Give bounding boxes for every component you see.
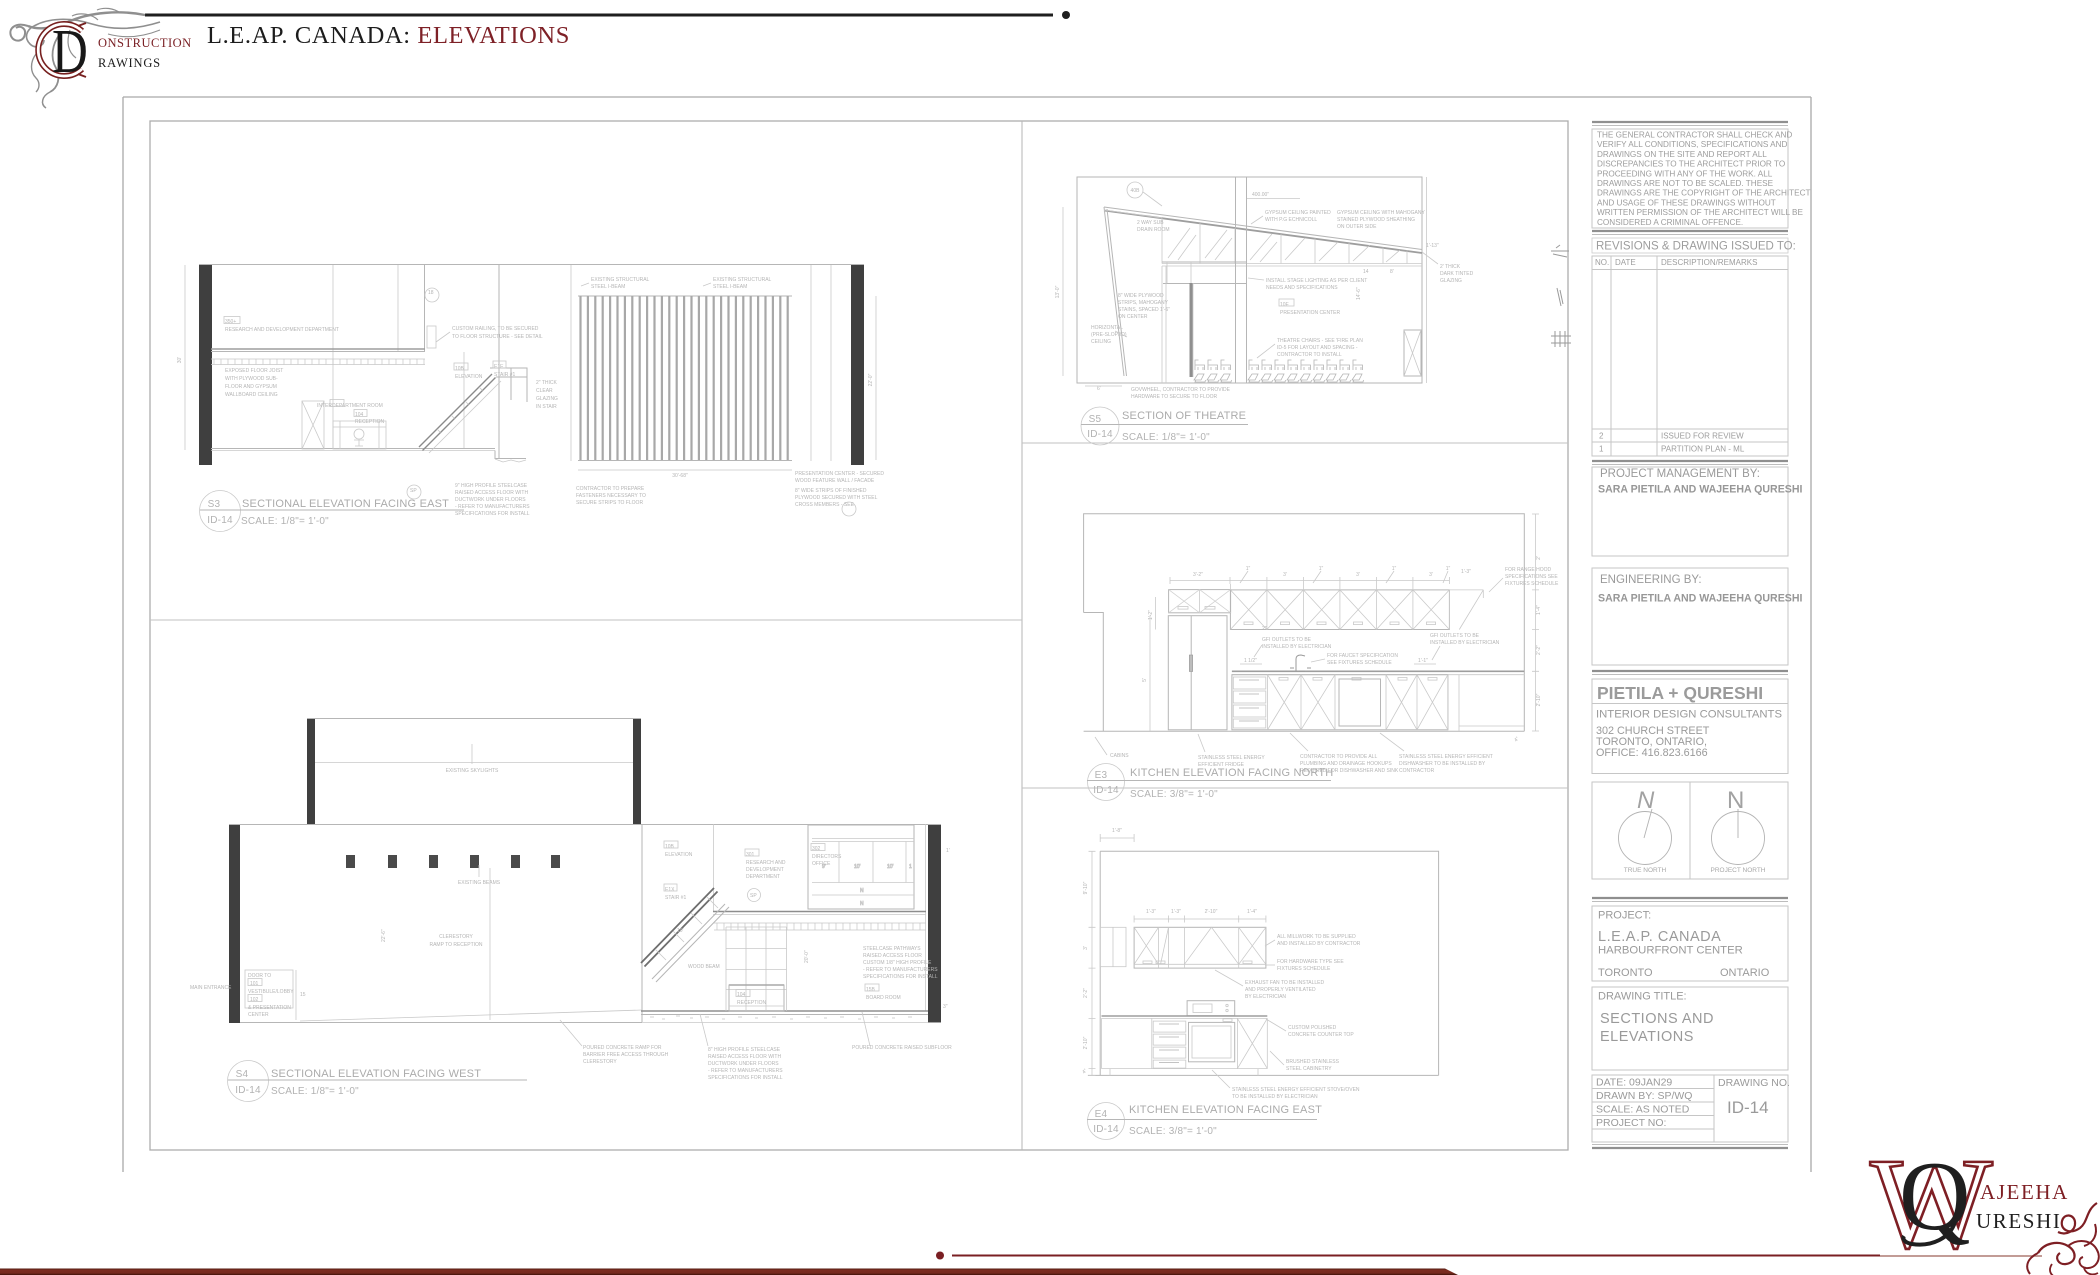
svg-text:E1E: E1E: [494, 364, 504, 370]
svg-text:DRAIN ROOM: DRAIN ROOM: [1137, 227, 1170, 233]
svg-text:SCALE: 1/8"= 1'-0": SCALE: 1/8"= 1'-0": [1122, 432, 1210, 443]
svg-text:2': 2': [1536, 556, 1542, 560]
svg-text:FLOOR AND GYPSUM: FLOOR AND GYPSUM: [225, 384, 277, 390]
svg-text:10': 10': [854, 864, 861, 870]
svg-text:2 WAY SUB: 2 WAY SUB: [1137, 220, 1164, 226]
svg-text:104: 104: [737, 992, 746, 998]
svg-text:5': 5': [1142, 678, 1148, 682]
svg-text:DUCTWORK UNDER FLOORS: DUCTWORK UNDER FLOORS: [455, 497, 526, 503]
svg-text:3': 3': [1429, 572, 1433, 578]
svg-text:DRAWING TITLE:: DRAWING TITLE:: [1598, 991, 1687, 1003]
svg-text:1'-2": 1'-2": [1148, 610, 1154, 620]
svg-text:- REFER TO MANUFACTURERS: - REFER TO MANUFACTURERS: [708, 1068, 783, 1074]
svg-text:30'-68": 30'-68": [672, 473, 688, 479]
svg-text:POURED CONCRETE RAISED SUBFLOO: POURED CONCRETE RAISED SUBFLOOR: [852, 1045, 952, 1051]
svg-text:CUSTOM POLISHED: CUSTOM POLISHED: [1288, 1025, 1337, 1031]
svg-text:L.E.AP. CANADA: ELEVATIONS: L.E.AP. CANADA: ELEVATIONS: [207, 22, 570, 49]
svg-text:E3: E3: [1095, 770, 1108, 781]
svg-text:GOVWHEEL, CONTRACTOR TO PROVID: GOVWHEEL, CONTRACTOR TO PROVIDE: [1131, 387, 1231, 393]
svg-text:SCALE: 3/8"= 1'-0": SCALE: 3/8"= 1'-0": [1130, 789, 1218, 800]
svg-text:RESEARCH AND: RESEARCH AND: [746, 860, 786, 866]
svg-text:DATE: 09JAN29: DATE: 09JAN29: [1596, 1077, 1672, 1089]
svg-text:RECEPTION: RECEPTION: [737, 1000, 767, 1006]
svg-text:RAISED ACCESS FLOOR WITH: RAISED ACCESS FLOOR WITH: [455, 490, 528, 496]
svg-text:SP: SP: [410, 488, 417, 494]
svg-text:FIXTURES SCHEDULE: FIXTURES SCHEDULE: [1277, 966, 1331, 972]
svg-text:SCALE: 1/8"= 1'-0": SCALE: 1/8"= 1'-0": [271, 1086, 359, 1097]
svg-text:- REFER TO MANUFACTURERS: - REFER TO MANUFACTURERS: [863, 967, 938, 973]
svg-text:CLERESTORY: CLERESTORY: [583, 1059, 617, 1065]
svg-text:DIRECTORS: DIRECTORS: [812, 854, 842, 860]
svg-text:THE GENERAL CONTRACTOR SHALL C: THE GENERAL CONTRACTOR SHALL CHECK AND: [1597, 131, 1792, 140]
svg-text:PARTITION PLAN - ML: PARTITION PLAN - ML: [1661, 445, 1745, 454]
svg-text:STAIR #1: STAIR #1: [494, 372, 516, 378]
svg-text:PROCEEDING WITH ANY OF THE WOR: PROCEEDING WITH ANY OF THE WORK. ALL: [1597, 169, 1773, 178]
svg-text:ALL MILLWORK TO BE SUPPLIED: ALL MILLWORK TO BE SUPPLIED: [1277, 934, 1356, 940]
svg-text:DATE: DATE: [1615, 258, 1636, 267]
svg-text:15B: 15B: [866, 987, 876, 993]
svg-text:- REFER TO MANUFACTURERS: - REFER TO MANUFACTURERS: [455, 504, 530, 510]
svg-text:TRUE NORTH: TRUE NORTH: [1624, 867, 1667, 874]
svg-text:14'-6": 14'-6": [1356, 287, 1362, 300]
svg-text:KITCHEN ELEVATION FACING NORTH: KITCHEN ELEVATION FACING NORTH: [1130, 767, 1333, 779]
svg-text:CLEAR: CLEAR: [536, 388, 553, 394]
svg-text:3": 3": [943, 1004, 948, 1010]
svg-text:STAINLESS STEEL ENERGY: STAINLESS STEEL ENERGY: [1198, 755, 1265, 761]
svg-text:8" WIDE STRIPS OF FINISHED: 8" WIDE STRIPS OF FINISHED: [795, 488, 867, 494]
svg-text:8" HIGH PROFILE STEELCASE: 8" HIGH PROFILE STEELCASE: [708, 1047, 781, 1053]
svg-text:3': 3': [1283, 572, 1287, 578]
svg-text:PRESENTATION CENTER: PRESENTATION CENTER: [1280, 310, 1340, 316]
svg-text:SCALE: 3/8"= 1'-0": SCALE: 3/8"= 1'-0": [1129, 1126, 1217, 1137]
svg-text:13'-0": 13'-0": [1055, 285, 1061, 298]
svg-text:DRAWINGS ARE NOT TO BE SCALED.: DRAWINGS ARE NOT TO BE SCALED. THESE: [1597, 179, 1774, 188]
svg-text:DRAWING NO.: DRAWING NO.: [1718, 1077, 1790, 1089]
svg-text:1'-8": 1'-8": [1112, 828, 1122, 834]
svg-text:GFI OUTLETS TO BE: GFI OUTLETS TO BE: [1430, 633, 1480, 639]
svg-text:101: 101: [250, 981, 259, 987]
svg-text:EXPOSED FLOOR JOIST: EXPOSED FLOOR JOIST: [225, 368, 283, 374]
svg-text:RAMP TO RECEPTION: RAMP TO RECEPTION: [429, 942, 482, 948]
svg-text:DRAWN BY: SP/WQ: DRAWN BY: SP/WQ: [1596, 1090, 1692, 1102]
svg-text:WITH PLYWOOD SUB-: WITH PLYWOOD SUB-: [225, 376, 278, 382]
svg-text:EXISTING STRUCTURAL: EXISTING STRUCTURAL: [591, 277, 650, 283]
svg-text:STAINED PLYWOOD SHEATHING: STAINED PLYWOOD SHEATHING: [1337, 217, 1415, 223]
svg-text:HARBOURFRONT CENTER: HARBOURFRONT CENTER: [1598, 945, 1743, 957]
svg-text:S5: S5: [1089, 414, 1102, 425]
svg-text:KITCHEN ELEVATION FACING EAST: KITCHEN ELEVATION FACING EAST: [1129, 1104, 1322, 1116]
svg-text:1'-4": 1'-4": [1536, 605, 1542, 615]
svg-text:WOOD BEAM: WOOD BEAM: [688, 964, 720, 970]
svg-text:22'-0": 22'-0": [868, 373, 874, 386]
svg-text:TO BE INSTALLED BY ELECTRICIAN: TO BE INSTALLED BY ELECTRICIAN: [1232, 1094, 1318, 1100]
svg-text:Q: Q: [1899, 1142, 1971, 1251]
svg-text:SPECIFICATIONS FOR INSTALL: SPECIFICATIONS FOR INSTALL: [863, 974, 938, 980]
svg-text:FIXTURES SCHEDULE: FIXTURES SCHEDULE: [1505, 581, 1559, 587]
svg-text:2'-2": 2'-2": [1083, 988, 1089, 998]
svg-text:STEEL CABINETRY: STEEL CABINETRY: [1286, 1066, 1332, 1072]
svg-text:GYPSUM CEILING WITH MAHOGANY: GYPSUM CEILING WITH MAHOGANY: [1337, 210, 1425, 216]
svg-text:RAISED ACCESS FLOOR: RAISED ACCESS FLOOR: [863, 953, 922, 959]
svg-text:N: N: [1637, 787, 1655, 814]
svg-text:10B: 10B: [665, 844, 675, 850]
svg-text:302: 302: [812, 846, 821, 852]
svg-text:FOR FAUCET SPECIFICATION: FOR FAUCET SPECIFICATION: [1327, 653, 1398, 659]
svg-text:WALLBOARD CEILING: WALLBOARD CEILING: [225, 392, 278, 398]
svg-text:18: 18: [428, 290, 434, 296]
svg-text:VERIFY ALL CONDITIONS, SPECIFI: VERIFY ALL CONDITIONS, SPECIFICATIONS AN…: [1597, 140, 1788, 149]
svg-text:SARA PIETILA AND WAJEEHA QURES: SARA PIETILA AND WAJEEHA QURESHI: [1598, 593, 1802, 605]
svg-text:STAINS, SPACED 1'-6": STAINS, SPACED 1'-6": [1118, 307, 1170, 313]
svg-text:N: N: [860, 901, 864, 907]
svg-text:3': 3': [1356, 572, 1360, 578]
svg-text:TO FLOOR STRUCTURE - SEE DETAI: TO FLOOR STRUCTURE - SEE DETAIL: [452, 334, 543, 340]
svg-text:22'-6": 22'-6": [381, 929, 387, 942]
svg-text:ONTARIO: ONTARIO: [1720, 967, 1770, 979]
svg-text:10B: 10B: [455, 366, 465, 372]
svg-text:RESEARCH AND DEVELOPMENT DEPAR: RESEARCH AND DEVELOPMENT DEPARTMENT: [225, 327, 339, 333]
svg-text:SPECIFICATIONS SEE: SPECIFICATIONS SEE: [1505, 574, 1558, 580]
svg-text:10': 10': [677, 928, 684, 934]
svg-text:SARA PIETILA AND WAJEEHA QURES: SARA PIETILA AND WAJEEHA QURESHI: [1598, 484, 1802, 496]
svg-text:ELEVATIONS: ELEVATIONS: [1600, 1029, 1694, 1045]
svg-text:INTERDEPARTMENT ROOM: INTERDEPARTMENT ROOM: [317, 403, 383, 409]
svg-text:FOR RANGE HOOD: FOR RANGE HOOD: [1505, 567, 1552, 573]
svg-text:PROJECT NORTH: PROJECT NORTH: [1710, 867, 1765, 874]
svg-text:S4: S4: [236, 1069, 249, 1080]
svg-text:9" HIGH PROFILE STEELCASE: 9" HIGH PROFILE STEELCASE: [455, 483, 528, 489]
svg-text:AND USAGE OF THESE DRAWINGS WI: AND USAGE OF THESE DRAWINGS WITHOUT: [1597, 198, 1776, 207]
svg-text:CABINS: CABINS: [1110, 753, 1129, 759]
svg-text:CLERESTORY: CLERESTORY: [439, 934, 473, 940]
svg-text:350+: 350+: [225, 319, 236, 325]
svg-text:STEELCASE PATHWAYS: STEELCASE PATHWAYS: [863, 946, 921, 952]
svg-text:102: 102: [250, 997, 259, 1003]
svg-text:TORONTO: TORONTO: [1598, 967, 1653, 979]
svg-text:301: 301: [746, 852, 755, 858]
svg-text:14: 14: [1363, 269, 1369, 275]
svg-text:PLYWOOD SECURED WITH STEEL: PLYWOOD SECURED WITH STEEL: [795, 495, 878, 501]
svg-text:3': 3': [1083, 946, 1089, 950]
svg-text:CONTRACTOR: CONTRACTOR: [1399, 768, 1435, 774]
svg-text:ONSTRUCTION: ONSTRUCTION: [98, 36, 192, 50]
svg-text:GLAZING: GLAZING: [1440, 278, 1462, 284]
svg-text:S3: S3: [208, 499, 221, 510]
svg-text:STEEL I-BEAM: STEEL I-BEAM: [591, 284, 625, 290]
svg-text:DRAWINGS ARE THE COPYRIGHT OF: DRAWINGS ARE THE COPYRIGHT OF THE ARCHIT…: [1597, 189, 1811, 198]
svg-text:PROJECT NO:: PROJECT NO:: [1596, 1117, 1666, 1129]
svg-text:FASTENERS NECESSARY TO: FASTENERS NECESSARY TO: [576, 493, 646, 499]
svg-text:BOARD ROOM: BOARD ROOM: [866, 995, 901, 1001]
svg-text:NO.: NO.: [1595, 258, 1609, 267]
svg-text:URESHI: URESHI: [1976, 1209, 2061, 1233]
svg-text:INSTALLED BY ELECTRICIAN: INSTALLED BY ELECTRICIAN: [1262, 644, 1332, 650]
svg-text:EXISTING BEAMS: EXISTING BEAMS: [458, 880, 501, 886]
svg-text:2: 2: [1599, 432, 1604, 441]
svg-text:SECTIONAL ELEVATION FACING WES: SECTIONAL ELEVATION FACING WEST: [271, 1068, 481, 1080]
svg-text:CONTRACTOR TO PREPARE: CONTRACTOR TO PREPARE: [576, 486, 645, 492]
svg-text:30': 30': [177, 357, 183, 364]
svg-text:STAINLESS STEEL ENERGY EFFICIE: STAINLESS STEEL ENERGY EFFICIENT STOVE/O…: [1232, 1087, 1360, 1093]
svg-text:1'-3": 1'-3": [1461, 569, 1471, 575]
svg-text:N: N: [1727, 787, 1744, 814]
svg-text:WRITTEN PERMISSION OF THE ARCH: WRITTEN PERMISSION OF THE ARCHITECT WILL…: [1597, 208, 1803, 217]
svg-text:CONSIDERED A CRIMINAL OFFENCE.: CONSIDERED A CRIMINAL OFFENCE.: [1597, 218, 1743, 227]
svg-text:ID-14: ID-14: [235, 1085, 261, 1096]
svg-text:N: N: [860, 888, 864, 894]
svg-text:PRESENTATION CENTER - SECURED: PRESENTATION CENTER - SECURED: [795, 471, 884, 477]
svg-text:INSTALLED BY ELECTRICIAN: INSTALLED BY ELECTRICIAN: [1430, 640, 1500, 646]
svg-text:& PRESENTATION: & PRESENTATION: [248, 1005, 291, 1011]
svg-text:DEPARTMENT: DEPARTMENT: [746, 874, 780, 880]
svg-text:AJEEHA: AJEEHA: [1980, 1180, 2069, 1204]
svg-text:ID-14: ID-14: [1727, 1098, 1769, 1117]
svg-text:1'-3": 1'-3": [1146, 909, 1156, 915]
svg-text:2": 2": [1262, 626, 1267, 632]
svg-text:CUSTOM 1/8" HIGH PROFILE: CUSTOM 1/8" HIGH PROFILE: [863, 960, 932, 966]
svg-text:BRUSHED STAINLESS: BRUSHED STAINLESS: [1286, 1059, 1340, 1065]
svg-text:OFFICE: OFFICE: [812, 861, 831, 867]
svg-text:HORIZONTAL: HORIZONTAL: [1091, 325, 1123, 331]
svg-text:RECEPTION: RECEPTION: [355, 419, 385, 425]
svg-text:DOOR TO: DOOR TO: [248, 973, 271, 979]
svg-text:DARK TINTED: DARK TINTED: [1440, 271, 1474, 277]
svg-text:L.E.A.P. CANADA: L.E.A.P. CANADA: [1598, 929, 1721, 945]
svg-text:CENTER: CENTER: [248, 1012, 269, 1018]
svg-text:DISCREPANCIES TO THE ARCHITECT: DISCREPANCIES TO THE ARCHITECT PRIOR TO: [1597, 160, 1785, 169]
svg-text:GLAZING: GLAZING: [536, 396, 558, 402]
svg-text:NEEDS AND SPECIFICATIONS: NEEDS AND SPECIFICATIONS: [1266, 285, 1338, 291]
svg-text:DISHWASHER TO BE INSTALLED BY: DISHWASHER TO BE INSTALLED BY: [1399, 761, 1486, 767]
svg-text:E4: E4: [1095, 1109, 1108, 1120]
svg-text:WITH P.G ECHNICOLL: WITH P.G ECHNICOLL: [1265, 217, 1317, 223]
svg-text:GFI OUTLETS TO BE: GFI OUTLETS TO BE: [1262, 637, 1312, 643]
svg-text:EXHAUST FAN TO BE INSTALLED: EXHAUST FAN TO BE INSTALLED: [1245, 980, 1324, 986]
svg-text:DEVELOPMENT: DEVELOPMENT: [746, 867, 784, 873]
svg-text:ENGINEERING BY:: ENGINEERING BY:: [1600, 574, 1702, 586]
svg-text:SCALE: 1/8"= 1'-0": SCALE: 1/8"= 1'-0": [241, 516, 329, 527]
svg-text:2'-2": 2'-2": [1536, 645, 1542, 655]
svg-text:1 1/2": 1 1/2": [1244, 658, 1257, 664]
svg-text:1'-3": 1'-3": [1171, 909, 1181, 915]
svg-text:EXISTING STRUCTURAL: EXISTING STRUCTURAL: [713, 277, 772, 283]
svg-text:1: 1: [1599, 445, 1604, 454]
svg-text:POURED CONCRETE RAMP FOR: POURED CONCRETE RAMP FOR: [583, 1045, 662, 1051]
svg-text:SECTIONS AND: SECTIONS AND: [1600, 1011, 1714, 1027]
svg-text:ID-14: ID-14: [1087, 429, 1113, 440]
svg-text:ON CENTER: ON CENTER: [1118, 314, 1148, 320]
svg-text:ON OUTER SIDE: ON OUTER SIDE: [1337, 224, 1377, 230]
svg-text:SEE FIXTURES SCHEDULE: SEE FIXTURES SCHEDULE: [1327, 660, 1392, 666]
svg-text:1': 1': [946, 848, 950, 854]
svg-text:15: 15: [300, 992, 306, 998]
svg-text:REVISIONS & DRAWING ISSUED TO:: REVISIONS & DRAWING ISSUED TO:: [1596, 241, 1796, 253]
svg-text:8" WIDE PLYWOOD: 8" WIDE PLYWOOD: [1118, 293, 1164, 299]
svg-text:AND PROPERLY VENTILATED: AND PROPERLY VENTILATED: [1245, 987, 1316, 993]
svg-text:CONTRACTOR TO PROVIDE ALL: CONTRACTOR TO PROVIDE ALL: [1300, 754, 1377, 760]
svg-text:10E: 10E: [1280, 302, 1290, 308]
svg-text:SECTION OF THEATRE: SECTION OF THEATRE: [1122, 410, 1246, 422]
svg-text:THEATRE CHAIRS - SEE 'FIRE PLA: THEATRE CHAIRS - SEE 'FIRE PLAN: [1277, 338, 1363, 344]
svg-text:20'-0": 20'-0": [804, 950, 810, 963]
svg-text:PROJECT:: PROJECT:: [1598, 910, 1651, 922]
svg-text:2'-10": 2'-10": [1205, 909, 1218, 915]
svg-text:STEEL I-BEAM: STEEL I-BEAM: [713, 284, 747, 290]
svg-text:2'-10": 2'-10": [1083, 1036, 1089, 1049]
svg-text:CUSTOM RAILING, TO BE SECURED: CUSTOM RAILING, TO BE SECURED: [452, 326, 539, 332]
svg-text:2" THICK: 2" THICK: [536, 380, 558, 386]
svg-text:HARDWARE TO SECURE TO FLOOR: HARDWARE TO SECURE TO FLOOR: [1131, 394, 1218, 400]
svg-text:1: 1: [909, 864, 912, 870]
svg-text:EXISTING SKYLIGHTS: EXISTING SKYLIGHTS: [446, 768, 499, 774]
svg-text:104: 104: [355, 412, 364, 418]
svg-text:SECURE STRIPS TO FLOOR: SECURE STRIPS TO FLOOR: [576, 500, 643, 506]
svg-text:IN STAIR: IN STAIR: [536, 404, 557, 410]
svg-text:INSTALL STAGE LIGHTING AS PER: INSTALL STAGE LIGHTING AS PER CLIENT: [1266, 278, 1367, 284]
svg-text:PROJECT MANAGEMENT BY:: PROJECT MANAGEMENT BY:: [1600, 468, 1760, 480]
svg-text:CONTRACTOR TO INSTALL: CONTRACTOR TO INSTALL: [1277, 352, 1342, 358]
svg-text:PIETILA + QURESHI: PIETILA + QURESHI: [1597, 683, 1763, 703]
svg-text:STAINLESS STEEL ENERGY EFFICIE: STAINLESS STEEL ENERGY EFFICIENT: [1399, 754, 1493, 760]
svg-text:STRIPS, MAHOGANY: STRIPS, MAHOGANY: [1118, 300, 1169, 306]
svg-text:CEILING: CEILING: [1091, 339, 1111, 345]
svg-text:8': 8': [1390, 269, 1394, 275]
svg-text:3'-2": 3'-2": [1193, 572, 1203, 578]
svg-text:DESCRIPTION/REMARKS: DESCRIPTION/REMARKS: [1661, 258, 1757, 267]
svg-text:INTERIOR DESIGN CONSULTANTS: INTERIOR DESIGN CONSULTANTS: [1596, 709, 1782, 721]
svg-text:GYPSUM CEILING PAINTED: GYPSUM CEILING PAINTED: [1265, 210, 1331, 216]
svg-text:2'-10": 2'-10": [1536, 693, 1542, 706]
svg-text:2' THICK: 2' THICK: [1440, 264, 1461, 270]
svg-text:AND INSTALLED BY CONTRACTOR: AND INSTALLED BY CONTRACTOR: [1277, 941, 1361, 947]
svg-text:1'-13": 1'-13": [1426, 243, 1439, 249]
svg-text:DRAWINGS ON THE SITE AND REPOR: DRAWINGS ON THE SITE AND REPORT ALL: [1597, 150, 1767, 159]
svg-text:DUCTWORK UNDER FLOORS: DUCTWORK UNDER FLOORS: [708, 1061, 779, 1067]
svg-text:CONCRETE COUNTER TOP: CONCRETE COUNTER TOP: [1288, 1032, 1354, 1038]
svg-text:ID-14: ID-14: [1093, 785, 1119, 796]
svg-text:E1X: E1X: [665, 887, 675, 893]
svg-text:BARRIER FREE ACCESS THROUGH: BARRIER FREE ACCESS THROUGH: [583, 1052, 669, 1058]
svg-text:OFFICE: 416.823.6166: OFFICE: 416.823.6166: [1596, 747, 1708, 759]
svg-text:STAIR #1: STAIR #1: [665, 895, 687, 901]
svg-text:FOR HARDWARE TYPE SEE: FOR HARDWARE TYPE SEE: [1277, 959, 1344, 965]
svg-text:6': 6': [1097, 386, 1101, 392]
svg-text:1'-4": 1'-4": [1247, 909, 1257, 915]
svg-text:10': 10': [887, 864, 894, 870]
svg-text:SPECIFICATIONS FOR INSTALL: SPECIFICATIONS FOR INSTALL: [708, 1075, 783, 1081]
svg-text:ELEVATION: ELEVATION: [455, 374, 483, 380]
svg-text:ELEVATION: ELEVATION: [665, 852, 693, 858]
svg-text:SP: SP: [750, 893, 757, 899]
svg-text:SPECIFICATIONS FOR INSTALL: SPECIFICATIONS FOR INSTALL: [455, 511, 530, 517]
svg-text:WOOD FEATURE WALL / FACADE: WOOD FEATURE WALL / FACADE: [795, 478, 875, 484]
svg-text:MAIN ENTRANCE: MAIN ENTRANCE: [190, 985, 232, 991]
svg-text:(PRE-SLOPED): (PRE-SLOPED): [1091, 332, 1127, 338]
svg-text:BY ELECTRICIAN: BY ELECTRICIAN: [1245, 994, 1286, 1000]
svg-text:SCALE: AS NOTED: SCALE: AS NOTED: [1596, 1104, 1690, 1116]
svg-text:RAISED ACCESS FLOOR WITH: RAISED ACCESS FLOOR WITH: [708, 1054, 781, 1060]
svg-text:ID-5 FOR LAYOUT AND SPACING -: ID-5 FOR LAYOUT AND SPACING -: [1277, 345, 1358, 351]
svg-text:ID-14: ID-14: [207, 515, 233, 526]
svg-text:40B: 40B: [1131, 188, 1141, 194]
svg-text:SECTIONAL ELEVATION FACING EAS: SECTIONAL ELEVATION FACING EAST: [242, 498, 449, 510]
svg-text:400.00": 400.00": [1252, 192, 1269, 198]
svg-text:ID-14: ID-14: [1093, 1124, 1119, 1135]
svg-text:1'-1": 1'-1": [1418, 658, 1428, 664]
svg-text:D: D: [52, 18, 88, 86]
svg-text:ISSUED FOR REVIEW: ISSUED FOR REVIEW: [1661, 432, 1744, 441]
svg-text:RAWINGS: RAWINGS: [98, 56, 161, 70]
svg-text:VESTIBULE/LOBBY: VESTIBULE/LOBBY: [248, 989, 294, 995]
svg-text:9'-10": 9'-10": [1083, 881, 1089, 894]
